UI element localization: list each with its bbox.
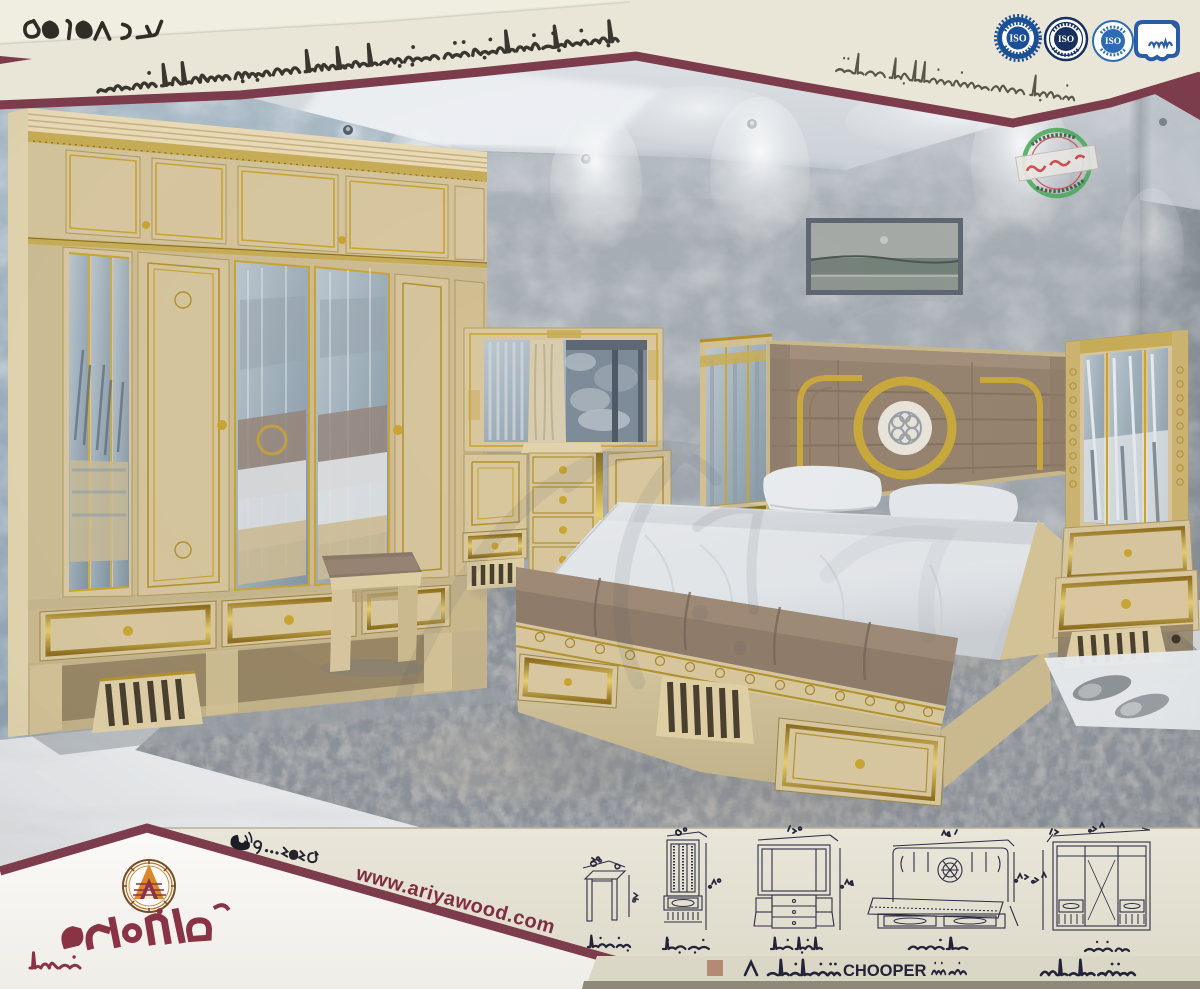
svg-text:ISO: ISO xyxy=(1105,37,1121,47)
svg-text:ISO: ISO xyxy=(1009,34,1026,45)
svg-text:CHOOPER: CHOOPER xyxy=(843,962,927,980)
svg-text:ISO: ISO xyxy=(1058,35,1074,45)
